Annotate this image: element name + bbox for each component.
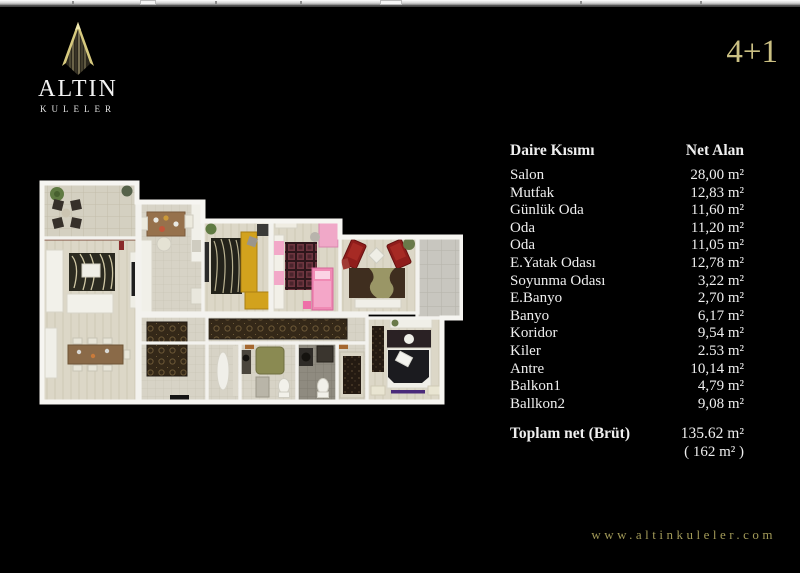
yellow-chaise <box>245 292 270 309</box>
table-row: Salon 28,00 m² <box>510 167 744 185</box>
ironing-board <box>217 352 229 390</box>
room-oda-pink <box>272 221 340 313</box>
dining-table <box>68 345 123 364</box>
chrome-tick <box>700 1 702 4</box>
total-value: 135.62 m² <box>681 425 744 443</box>
row-label: E.Yatak Odası <box>510 255 596 273</box>
room-balcony1 <box>42 183 137 238</box>
chrome-button-edge <box>140 0 156 5</box>
row-label: Oda <box>510 237 535 255</box>
plan-type-label: 4+1 <box>726 34 778 71</box>
row-value: 6,17 m² <box>698 308 744 326</box>
plant-icon <box>403 238 415 250</box>
sofa <box>46 250 63 312</box>
row-label: Soyunma Odası <box>510 273 605 291</box>
table-rows: Salon 28,00 m² Mutfak 12,83 m² Günlük Od… <box>510 167 744 413</box>
room-kitchen <box>140 202 204 313</box>
table-row: Günlük Oda 11,60 m² <box>510 202 744 220</box>
kitchen-counter <box>191 204 202 262</box>
brand-logo: ALTIN KULELER <box>22 20 134 114</box>
row-value: 11,60 m² <box>691 202 744 220</box>
floor-plan <box>35 180 463 406</box>
toilet <box>279 379 290 394</box>
table-row: E.Banyo 2,70 m² <box>510 290 744 308</box>
room-e-yatak <box>367 318 442 402</box>
gross-value: ( 162 m² ) <box>510 444 744 461</box>
plant-icon <box>122 186 133 197</box>
table-row: Balkon1 4,79 m² <box>510 378 744 396</box>
corridor-rug <box>205 319 347 339</box>
chrome-tick <box>580 1 582 4</box>
pink-desk <box>319 223 338 247</box>
room-oda-red <box>340 238 418 313</box>
table-row: Oda 11,05 m² <box>510 237 744 255</box>
row-label: Koridor <box>510 325 558 343</box>
room-balcony2 <box>417 237 462 318</box>
table-row: Oda 11,20 m² <box>510 220 744 238</box>
table-header: Daire Kısımı Net Alan <box>510 142 744 160</box>
brand-subname: KULELER <box>22 104 134 114</box>
toilet <box>318 379 329 394</box>
coffee-table <box>82 264 100 277</box>
room-antre <box>140 316 207 402</box>
room-soyunma <box>337 343 367 402</box>
room-e-banyo <box>297 343 337 402</box>
brand-name: ALTIN <box>22 76 134 102</box>
room-kiler <box>207 343 240 402</box>
runner <box>391 390 425 394</box>
nightstand <box>371 386 385 395</box>
room-banyo <box>240 343 297 402</box>
row-value: 9,08 m² <box>698 396 744 414</box>
table-row: Banyo 6,17 m² <box>510 308 744 326</box>
tv-icon <box>132 262 136 296</box>
total-label: Toplam net (Brüt) <box>510 425 630 443</box>
total-row: Toplam net (Brüt) 135.62 m² <box>510 425 744 443</box>
antre-rug <box>147 322 187 376</box>
table-row: Ballkon2 9,08 m² <box>510 396 744 414</box>
plant-icon <box>206 224 217 235</box>
area-table: Daire Kısımı Net Alan Salon 28,00 m² Mut… <box>510 142 744 461</box>
loveseat <box>67 294 113 313</box>
dresser <box>355 299 401 308</box>
table-row: Kiler 2.53 m² <box>510 343 744 361</box>
table-row: E.Yatak Odası 12,78 m² <box>510 255 744 273</box>
row-value: 10,14 m² <box>690 361 744 379</box>
row-value: 9,54 m² <box>698 325 744 343</box>
row-label: Ballkon2 <box>510 396 565 414</box>
row-value: 28,00 m² <box>690 167 744 185</box>
row-label: Mutfak <box>510 185 554 203</box>
chrome-button-edge <box>380 0 402 5</box>
table-row: Koridor 9,54 m² <box>510 325 744 343</box>
sideboard <box>45 328 57 378</box>
row-value: 2.53 m² <box>698 343 744 361</box>
green-rug <box>256 347 284 374</box>
tv-icon <box>204 242 209 282</box>
row-value: 12,83 m² <box>690 185 744 203</box>
chrome-tick <box>215 1 217 4</box>
table-row: Mutfak 12,83 m² <box>510 185 744 203</box>
row-value: 11,05 m² <box>691 237 744 255</box>
window-chrome-strip <box>0 0 800 7</box>
tower-icon <box>58 20 98 76</box>
website-link[interactable]: www.altinkuleler.com <box>591 527 776 543</box>
vanity <box>241 350 251 374</box>
row-label: Salon <box>510 167 544 185</box>
room-gunluk-oda <box>203 221 270 313</box>
kitchen-counter <box>141 240 152 312</box>
presentation-slide: ALTIN KULELER 4+1 <box>0 0 800 573</box>
row-label: Günlük Oda <box>510 202 584 220</box>
table-row: Soyunma Odası 3,22 m² <box>510 273 744 291</box>
col-section-header: Daire Kısımı <box>510 142 595 160</box>
wardrobe <box>372 326 384 372</box>
dressing-rug <box>343 356 361 394</box>
chrome-tick <box>72 1 74 4</box>
table-row: Antre 10,14 m² <box>510 361 744 379</box>
room-salon <box>42 238 137 402</box>
row-label: Balkon1 <box>510 378 561 396</box>
col-area-header: Net Alan <box>686 142 744 160</box>
row-label: Oda <box>510 220 535 238</box>
chrome-tick <box>300 1 302 4</box>
row-value: 4,79 m² <box>698 378 744 396</box>
shower <box>317 346 333 362</box>
row-value: 11,20 m² <box>691 220 744 238</box>
row-value: 12,78 m² <box>690 255 744 273</box>
row-label: Kiler <box>510 343 541 361</box>
row-label: E.Banyo <box>510 290 562 308</box>
row-label: Antre <box>510 361 544 379</box>
row-label: Banyo <box>510 308 549 326</box>
row-value: 2,70 m² <box>698 290 744 308</box>
towel-rack <box>256 377 269 397</box>
fridge <box>191 288 202 304</box>
row-value: 3,22 m² <box>698 273 744 291</box>
